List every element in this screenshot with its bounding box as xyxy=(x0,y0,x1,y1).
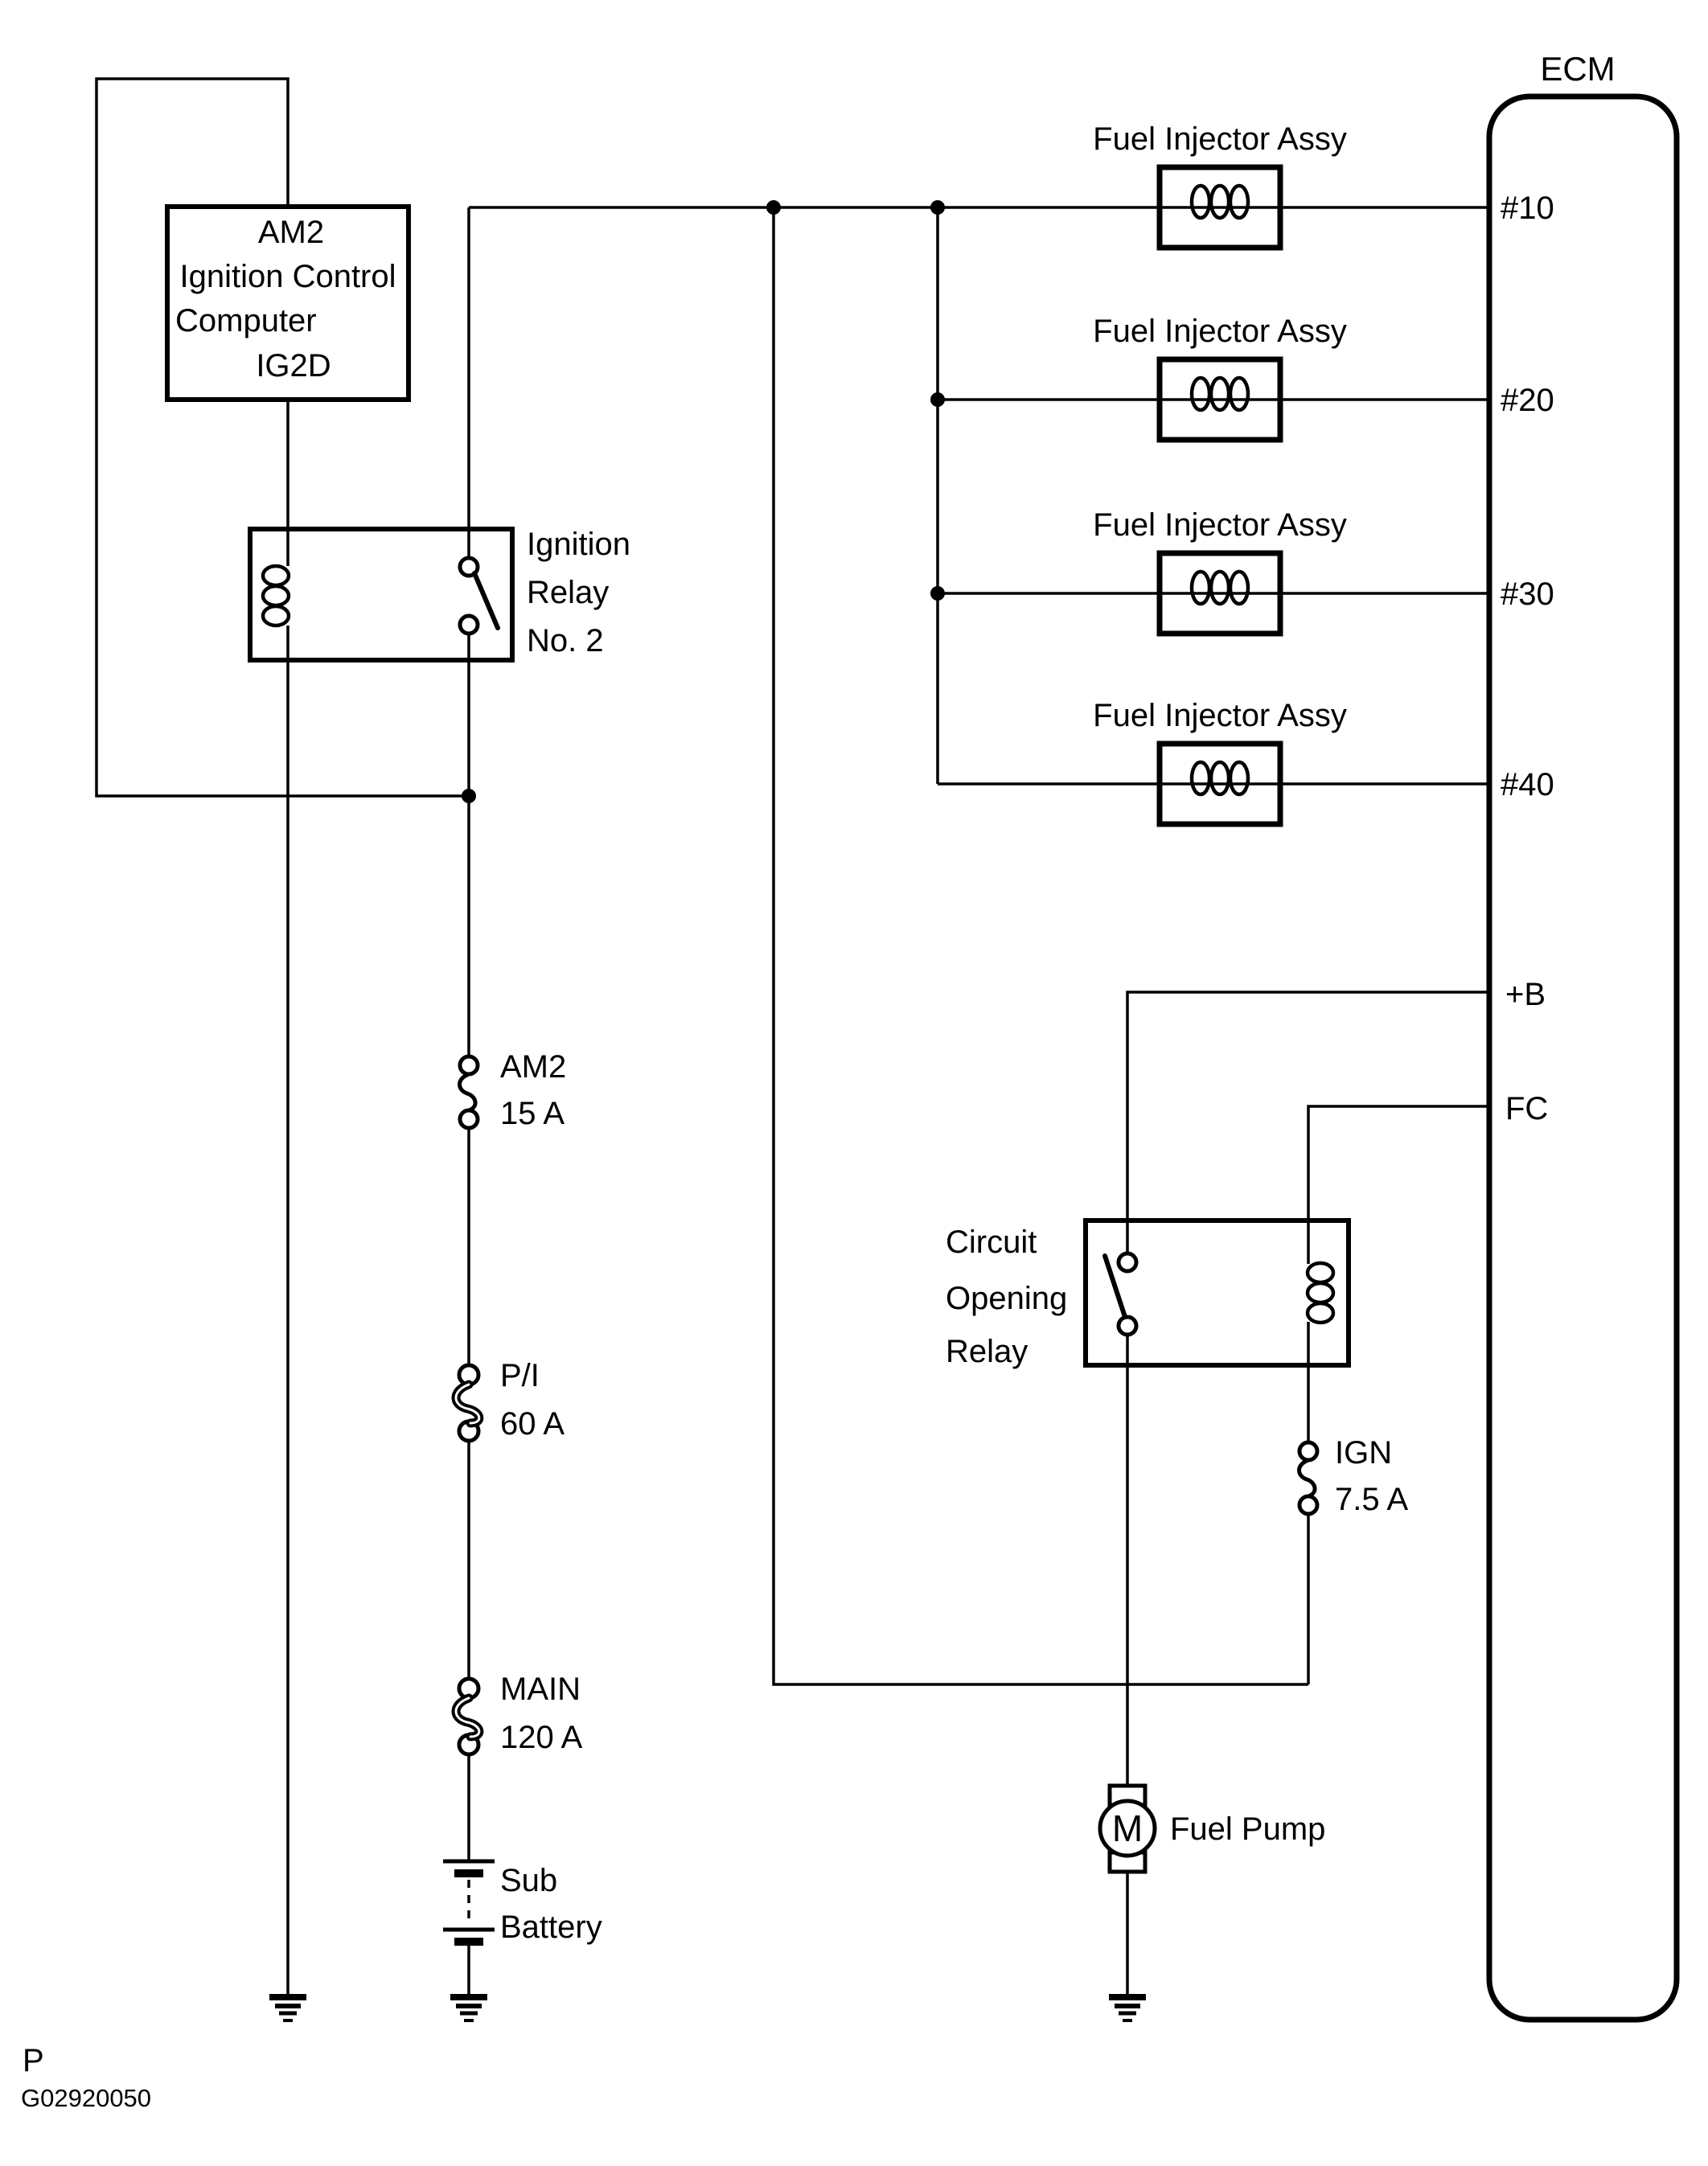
ecm-pin-plus-b: +B xyxy=(1505,977,1546,1012)
ecm-pin-10: #10 xyxy=(1501,191,1554,226)
fuse-am2: AM2 15 A xyxy=(460,1049,567,1131)
circuit-opening-relay: Circuit Opening Relay xyxy=(946,1220,1349,1369)
fuel-injector-3: Fuel Injector Assy xyxy=(1093,507,1347,634)
fuel-injector-2: Fuel Injector Assy xyxy=(1093,314,1347,440)
wire-fc xyxy=(1308,1106,1489,1220)
fuel-pump-motor-letter: M xyxy=(1112,1807,1143,1849)
fuse-main-rating: 120 A xyxy=(500,1720,583,1755)
am2-computer-line3: Computer xyxy=(175,303,317,338)
junction-dots xyxy=(462,200,945,803)
ecm: ECM #10 #20 #30 #40 +B FC xyxy=(1489,50,1677,2020)
fuse-am2-rating: 15 A xyxy=(500,1096,565,1131)
fuse-main-name: MAIN xyxy=(500,1672,581,1707)
sub-battery: Sub Battery xyxy=(443,1861,602,1945)
ecm-pin-30: #30 xyxy=(1501,576,1554,612)
junction-dot xyxy=(462,789,476,803)
fuel-injector-1: Fuel Injector Assy xyxy=(1093,121,1347,248)
fuse-pi-rating: 60 A xyxy=(500,1406,565,1442)
ground-symbol-fuel-pump xyxy=(1109,1997,1146,2020)
fusible-link-pi: P/I 60 A xyxy=(456,1358,565,1442)
ground-symbol-left xyxy=(269,1997,306,2020)
battery-label-line2: Battery xyxy=(500,1910,602,1945)
relay-switch-icon xyxy=(460,558,498,634)
ignition-relay-no2: Ignition Relay No. 2 xyxy=(250,527,630,660)
fuse-ign-name: IGN xyxy=(1335,1435,1392,1471)
ecm-pin-40: #40 xyxy=(1501,767,1554,802)
footer: P G02920050 xyxy=(21,2043,151,2112)
injector-label-3: Fuel Injector Assy xyxy=(1093,507,1347,543)
ignition-relay-line3: No. 2 xyxy=(527,623,604,658)
ignition-relay-line2: Relay xyxy=(527,575,609,610)
footer-page: P xyxy=(23,2043,44,2078)
fuel-pump-label: Fuel Pump xyxy=(1170,1811,1325,1847)
junction-dot xyxy=(930,586,945,601)
ecm-pin-20: #20 xyxy=(1501,383,1554,418)
fuel-injector-4: Fuel Injector Assy xyxy=(1093,698,1347,824)
ecm-pin-fc: FC xyxy=(1505,1091,1548,1126)
ecm-title: ECM xyxy=(1540,50,1615,88)
wire-ign-feed xyxy=(774,207,1308,1684)
relay-coil-icon xyxy=(263,566,289,626)
relay-switch-icon xyxy=(1105,1253,1136,1335)
injector-label-1: Fuel Injector Assy xyxy=(1093,121,1347,157)
ground-symbol-battery xyxy=(450,1997,487,2020)
injector-coil-icon xyxy=(1192,378,1248,410)
fuse-pi-name: P/I xyxy=(500,1358,540,1393)
circuit-opening-relay-line3: Relay xyxy=(946,1334,1028,1369)
am2-computer-line4: IG2D xyxy=(256,348,331,384)
footer-figure-code: G02920050 xyxy=(21,2084,151,2112)
fuse-ign-rating: 7.5 A xyxy=(1335,1482,1409,1517)
injector-coil-icon xyxy=(1192,186,1248,218)
battery-label-line1: Sub xyxy=(500,1863,557,1898)
ignition-relay-line1: Ignition xyxy=(527,527,630,562)
injector-label-4: Fuel Injector Assy xyxy=(1093,698,1347,733)
fusible-link-main: MAIN 120 A xyxy=(456,1672,583,1755)
injector-coil-icon xyxy=(1192,572,1248,604)
junction-dot xyxy=(930,200,945,215)
injector-coil-icon xyxy=(1192,762,1248,794)
am2-computer-line2: Ignition Control xyxy=(179,259,396,294)
am2-ignition-computer: AM2 Ignition Control Computer IG2D xyxy=(167,207,409,400)
am2-computer-line1: AM2 xyxy=(258,215,324,250)
junction-dot xyxy=(930,392,945,407)
relay-coil-icon xyxy=(1308,1263,1333,1323)
wiring-diagram: AM2 Ignition Control Computer IG2D Ignit… xyxy=(0,0,1708,2166)
fuse-ign: IGN 7.5 A xyxy=(1299,1435,1409,1517)
fuse-am2-name: AM2 xyxy=(500,1049,566,1085)
circuit-opening-relay-line1: Circuit xyxy=(946,1225,1037,1260)
injector-label-2: Fuel Injector Assy xyxy=(1093,314,1347,349)
wire-ig2-loop xyxy=(96,79,469,796)
junction-dot xyxy=(766,200,781,215)
fuel-pump: M Fuel Pump xyxy=(1100,1786,1325,1872)
circuit-opening-relay-line2: Opening xyxy=(946,1281,1067,1316)
